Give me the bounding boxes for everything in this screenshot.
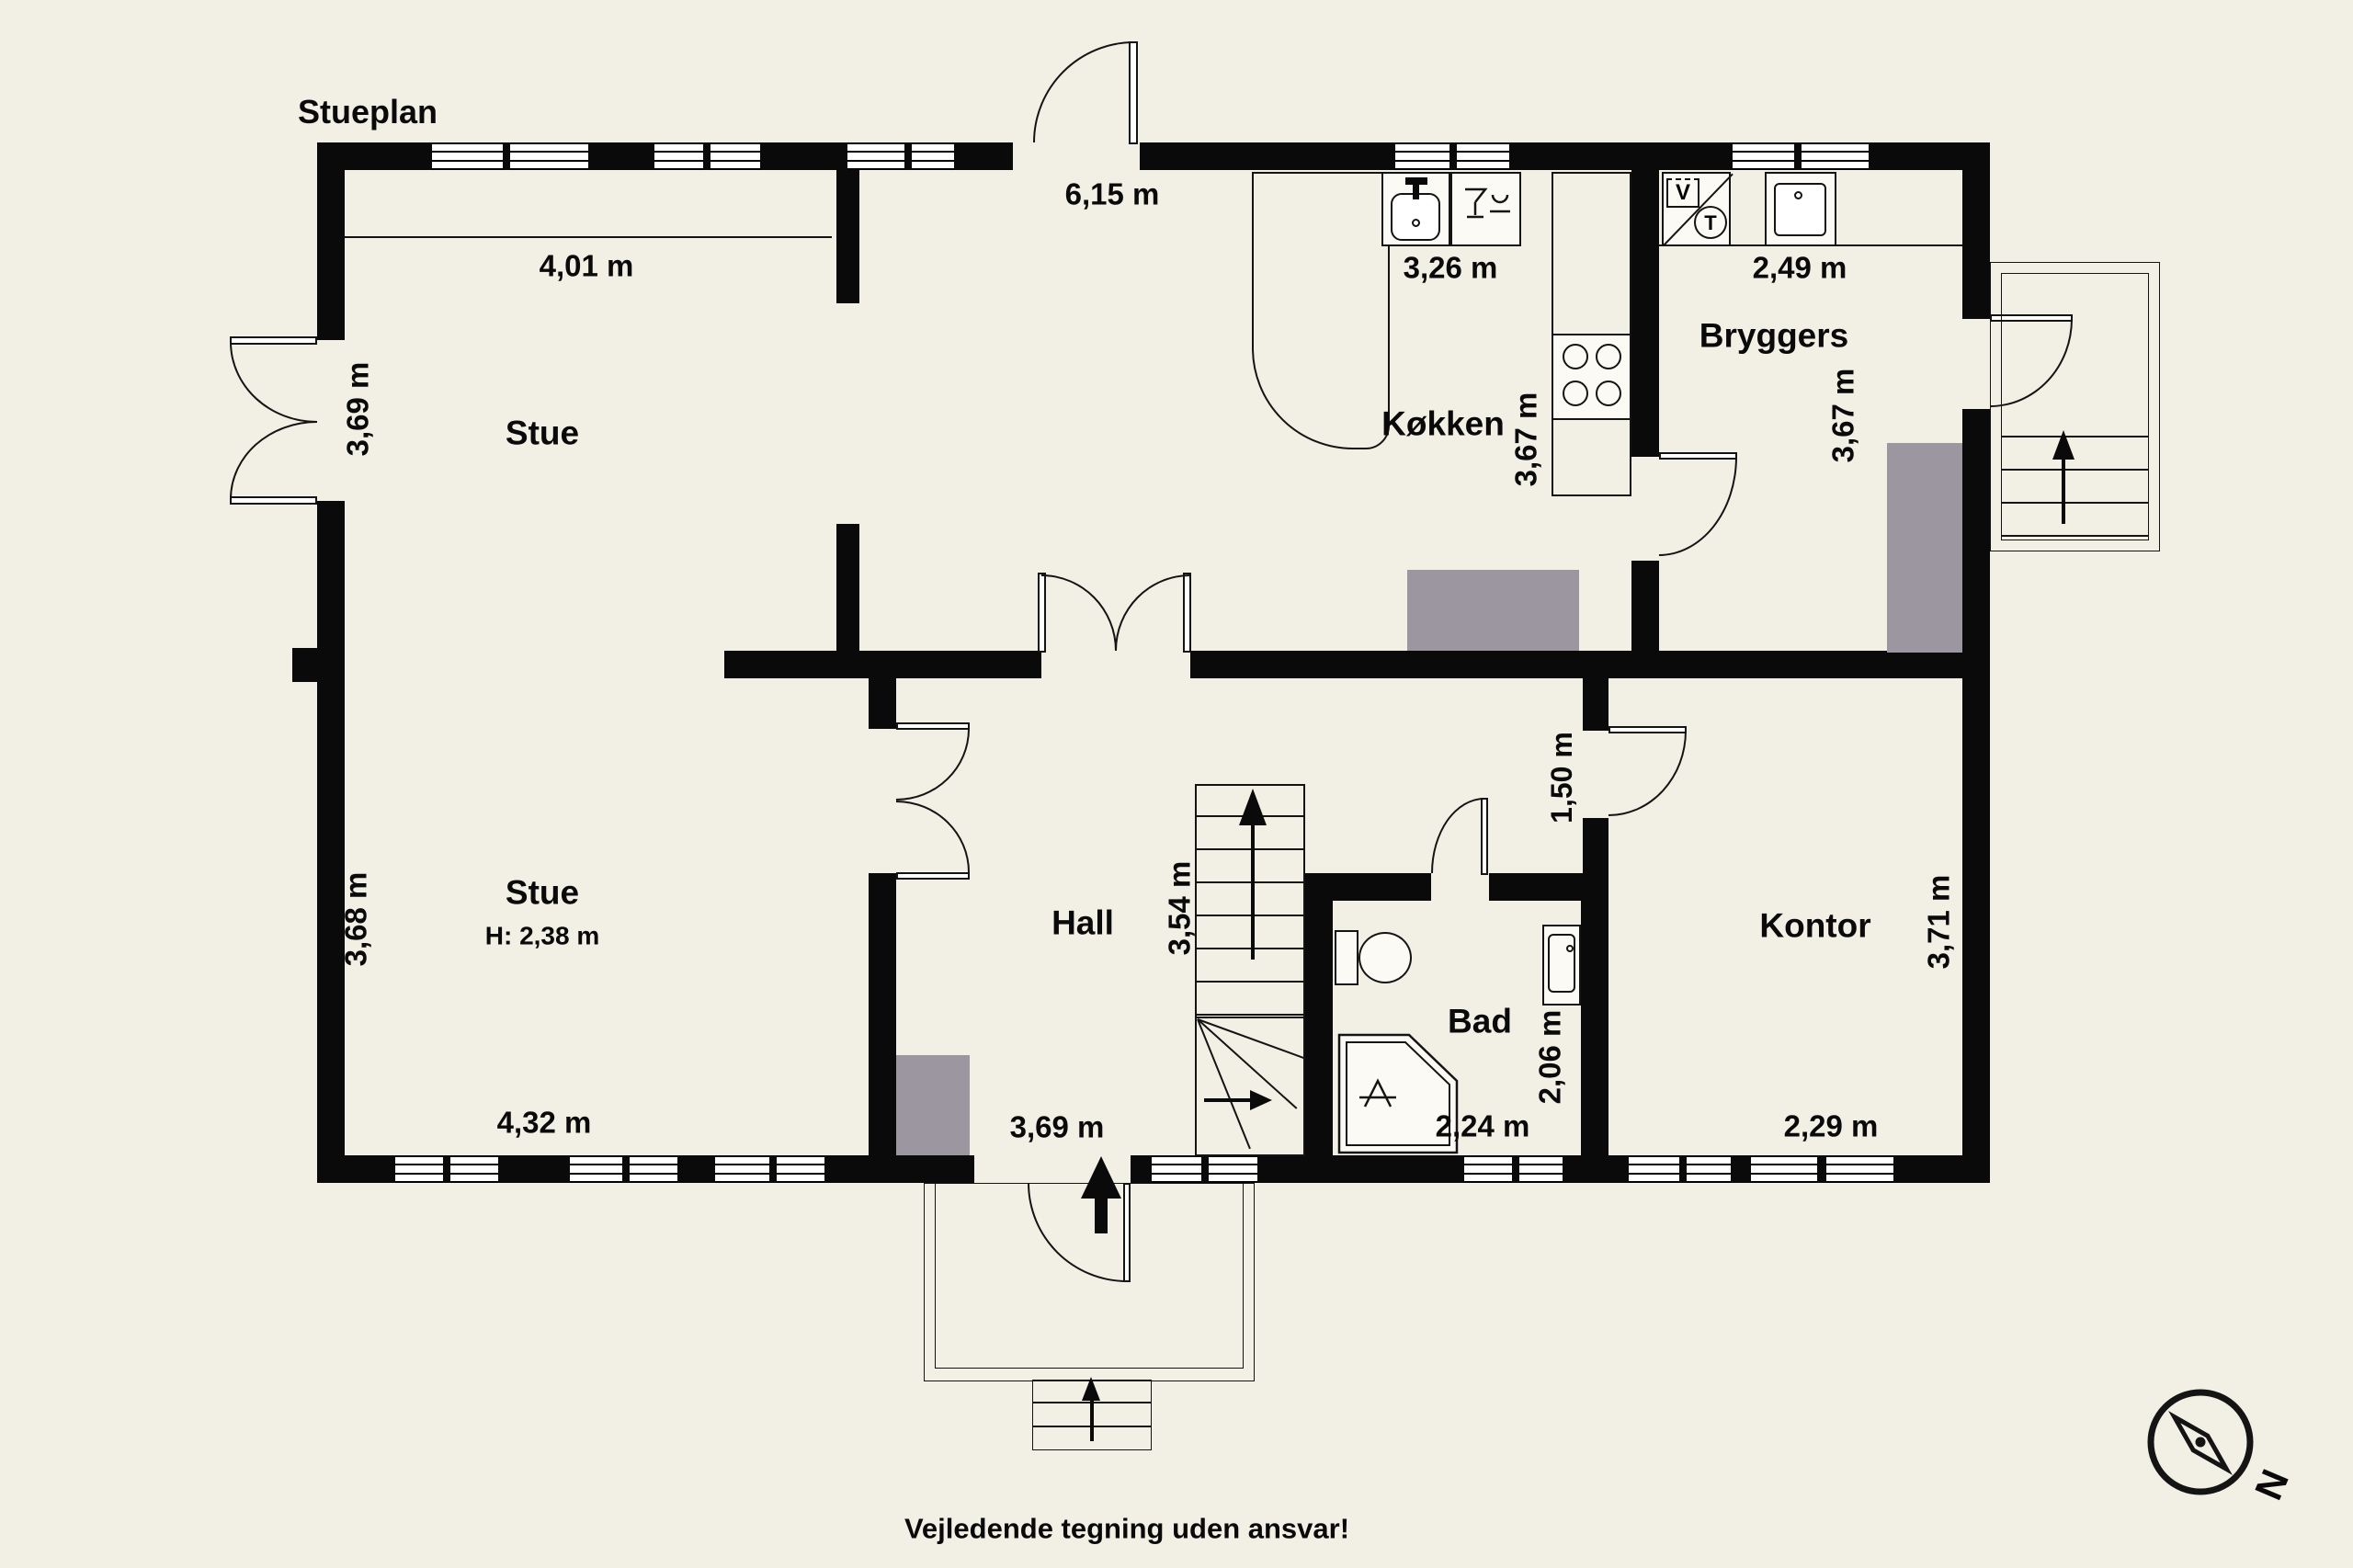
window-pane: [630, 1155, 677, 1183]
right-arrow-head: [1250, 1090, 1272, 1110]
door-opening-bryggers: [1631, 457, 1659, 561]
dryer-icon: T: [1694, 206, 1727, 239]
window-pane: [654, 142, 703, 170]
wall-stue-upper-stub-bottom: [836, 524, 859, 651]
chimney-block: [1407, 570, 1579, 651]
disclaimer-text: Vejledende tegning uden ansvar!: [904, 1515, 1349, 1545]
window-pane: [1395, 142, 1449, 170]
up-arrow-head: [2052, 430, 2075, 460]
window-pane: [510, 142, 588, 170]
door-swing-arc: [230, 421, 317, 499]
compass-icon: [2143, 1383, 2309, 1530]
chimney-block: [1887, 443, 1962, 653]
door-opening-stue-hall: [869, 729, 896, 873]
wall-bad-kontor: [1581, 873, 1608, 1155]
dim-stue-lower-width: 4,32 m: [497, 1108, 592, 1140]
dim-hall-height: 3,54 m: [1165, 861, 1197, 956]
toilet-bowl: [1358, 932, 1412, 983]
window-pane: [912, 142, 954, 170]
entry-arrow-head: [1081, 1156, 1121, 1199]
window-pane: [450, 1155, 498, 1183]
window-pane: [715, 1155, 769, 1183]
dim-kontor-width: 2,29 m: [1784, 1111, 1879, 1143]
door-opening-terrace: [1013, 142, 1140, 170]
door-swing-arc: [230, 342, 317, 423]
dim-kokken-height: 3,67 m: [1511, 392, 1543, 487]
window-pane: [1457, 142, 1509, 170]
dim-bad-height: 2,06 m: [1535, 1010, 1567, 1105]
window-pane: [710, 142, 760, 170]
window-pane: [1751, 1155, 1817, 1183]
wall-bad-north-left: [1305, 873, 1431, 901]
window-pane: [432, 142, 503, 170]
window-pane: [1826, 1155, 1893, 1183]
window-pane: [1152, 1155, 1201, 1183]
up-arrow-shaft: [2062, 458, 2065, 524]
window-pane: [1464, 1155, 1512, 1183]
faucet-icon: [1405, 177, 1427, 185]
counter-edge: [1659, 244, 1962, 246]
drain-icon: [1794, 191, 1802, 199]
room-label-kontor: Kontor: [1759, 909, 1870, 945]
dim-kokken-width: 3,26 m: [1404, 253, 1498, 285]
window-pane: [1209, 1155, 1257, 1183]
door-swing-arc: [896, 729, 970, 801]
dimension-line: [345, 236, 832, 238]
room-label-hall: Hall: [1051, 906, 1114, 942]
door-leaf: [896, 872, 970, 880]
room-label-kokken: Køkken: [1381, 407, 1505, 443]
vanity-knob: [1566, 945, 1574, 952]
staircase-winder-line: [1195, 1017, 1305, 1018]
dim-corridor: 1,50 m: [1547, 732, 1578, 824]
burner-icon: [1563, 344, 1588, 369]
burner-icon: [1596, 381, 1621, 406]
wall-hall-north-left: [724, 651, 1041, 678]
door-opening-bryggers-exit: [1962, 319, 1990, 409]
window-pane: [1802, 142, 1869, 170]
dim-bad-width: 2,24 m: [1436, 1111, 1530, 1143]
window-pane: [847, 142, 904, 170]
room-label-bryggers: Bryggers: [1699, 319, 1848, 355]
door-swing-arc: [1115, 574, 1190, 651]
dim-kontor-height: 3,71 m: [1924, 875, 1956, 970]
wall-kontor-west-stub-top: [1583, 678, 1608, 731]
room-label-stue-upper: Stue: [506, 416, 579, 452]
dim-bryggers-width: 2,49 m: [1753, 253, 1847, 285]
dishwasher-icon: [1461, 184, 1513, 226]
door-swing-arc: [1033, 41, 1134, 142]
window-pane: [1519, 1155, 1563, 1183]
window-pane: [1629, 1155, 1679, 1183]
burner-icon: [1563, 381, 1588, 406]
window-pane: [1733, 142, 1794, 170]
wall-stue-hall-stub: [869, 678, 896, 729]
wall-stue-upper-stub-top: [836, 170, 859, 303]
entry-arrow-shaft: [1095, 1197, 1108, 1233]
dim-dining-width: 6,15 m: [1065, 179, 1160, 211]
up-arrow-head: [1239, 789, 1267, 825]
kitchen-sink-basin: [1391, 193, 1440, 241]
wall-kokken-bryggers-top: [1631, 170, 1659, 457]
plan-title: Stueplan: [298, 95, 438, 130]
door-swing-arc: [1431, 798, 1484, 873]
kitchen-peninsula-counter: [1252, 172, 1390, 449]
window-pane: [1687, 1155, 1731, 1183]
washer-icon: V: [1666, 178, 1699, 208]
left-wall-pier: [292, 648, 317, 682]
ceiling-height-stue-lower: H: 2,38 m: [485, 922, 600, 949]
toilet-tank: [1335, 930, 1358, 985]
door-swing-arc: [896, 801, 970, 872]
room-label-stue-lower: Stue: [506, 876, 579, 912]
right-arrow-shaft: [1204, 1098, 1252, 1102]
porch-inner: [935, 1183, 1244, 1369]
room-label-bad: Bad: [1448, 1005, 1512, 1040]
burner-icon: [1596, 344, 1621, 369]
door-opening-kontor: [1583, 731, 1608, 818]
door-swing-arc: [1659, 457, 1737, 556]
window-pane: [570, 1155, 622, 1183]
window-pane: [777, 1155, 824, 1183]
left-wall: [317, 142, 345, 1183]
vanity-door: [1548, 934, 1575, 993]
faucet-icon: [1413, 185, 1419, 199]
wall-kontor-west-stub-bottom: [1583, 818, 1608, 873]
floor-plan: Stueplan: [0, 0, 2353, 1568]
up-arrow-head: [1082, 1377, 1100, 1401]
stove: [1552, 334, 1631, 420]
wall-kokken-bryggers-bottom: [1631, 561, 1659, 651]
chimney-block: [896, 1055, 970, 1155]
dim-bryggers-height: 3,67 m: [1828, 369, 1860, 463]
door-swing-arc: [1041, 574, 1117, 651]
dim-hall-width: 3,69 m: [1010, 1112, 1105, 1144]
dim-stue-upper-width: 4,01 m: [540, 251, 634, 283]
wall-hall-north-right: [1190, 651, 1990, 678]
dim-stue-upper-height: 3,69 m: [343, 362, 375, 457]
dim-stue-lower-height: 3,68 m: [341, 872, 373, 967]
up-arrow-shaft: [1251, 824, 1255, 960]
door-swing-arc: [1608, 731, 1687, 816]
window-pane: [395, 1155, 443, 1183]
drain-icon: [1412, 219, 1420, 227]
wall-stairs-bad: [1305, 873, 1333, 1155]
landing-steps: [2001, 404, 2149, 540]
wall-stue-hall: [869, 873, 896, 1155]
